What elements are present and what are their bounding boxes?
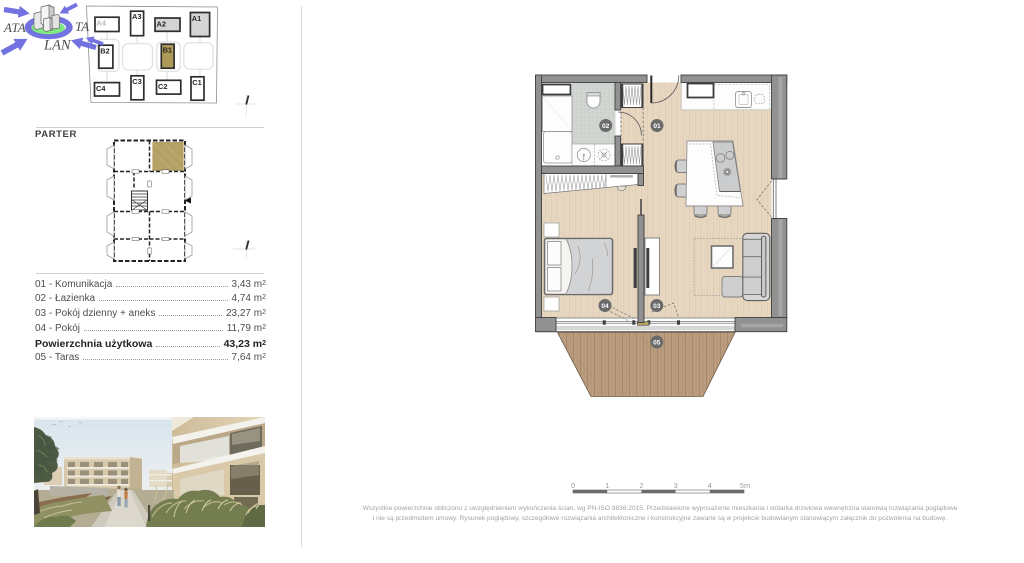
svg-text:C1: C1 bbox=[192, 78, 201, 87]
svg-text:05: 05 bbox=[653, 339, 661, 346]
svg-text:LAN: LAN bbox=[43, 38, 72, 54]
svg-text:A2: A2 bbox=[157, 20, 166, 29]
svg-text:1: 1 bbox=[605, 481, 609, 490]
svg-text:5m: 5m bbox=[740, 481, 750, 490]
svg-text:2: 2 bbox=[639, 481, 643, 490]
svg-text:C4: C4 bbox=[96, 84, 106, 93]
svg-text:TA: TA bbox=[75, 19, 89, 34]
svg-text:04: 04 bbox=[601, 303, 609, 310]
svg-text:03: 03 bbox=[653, 303, 661, 310]
svg-text:A1: A1 bbox=[192, 14, 201, 23]
svg-text:C3: C3 bbox=[132, 77, 141, 86]
svg-text:B1: B1 bbox=[163, 46, 172, 55]
svg-text:C2: C2 bbox=[158, 82, 167, 91]
svg-text:3: 3 bbox=[674, 481, 678, 490]
svg-text:ATA: ATA bbox=[3, 20, 26, 35]
svg-text:02: 02 bbox=[602, 123, 610, 130]
svg-text:4: 4 bbox=[708, 481, 712, 490]
svg-text:01: 01 bbox=[653, 123, 661, 130]
svg-text:A3: A3 bbox=[132, 12, 141, 21]
svg-text:0: 0 bbox=[571, 481, 575, 490]
